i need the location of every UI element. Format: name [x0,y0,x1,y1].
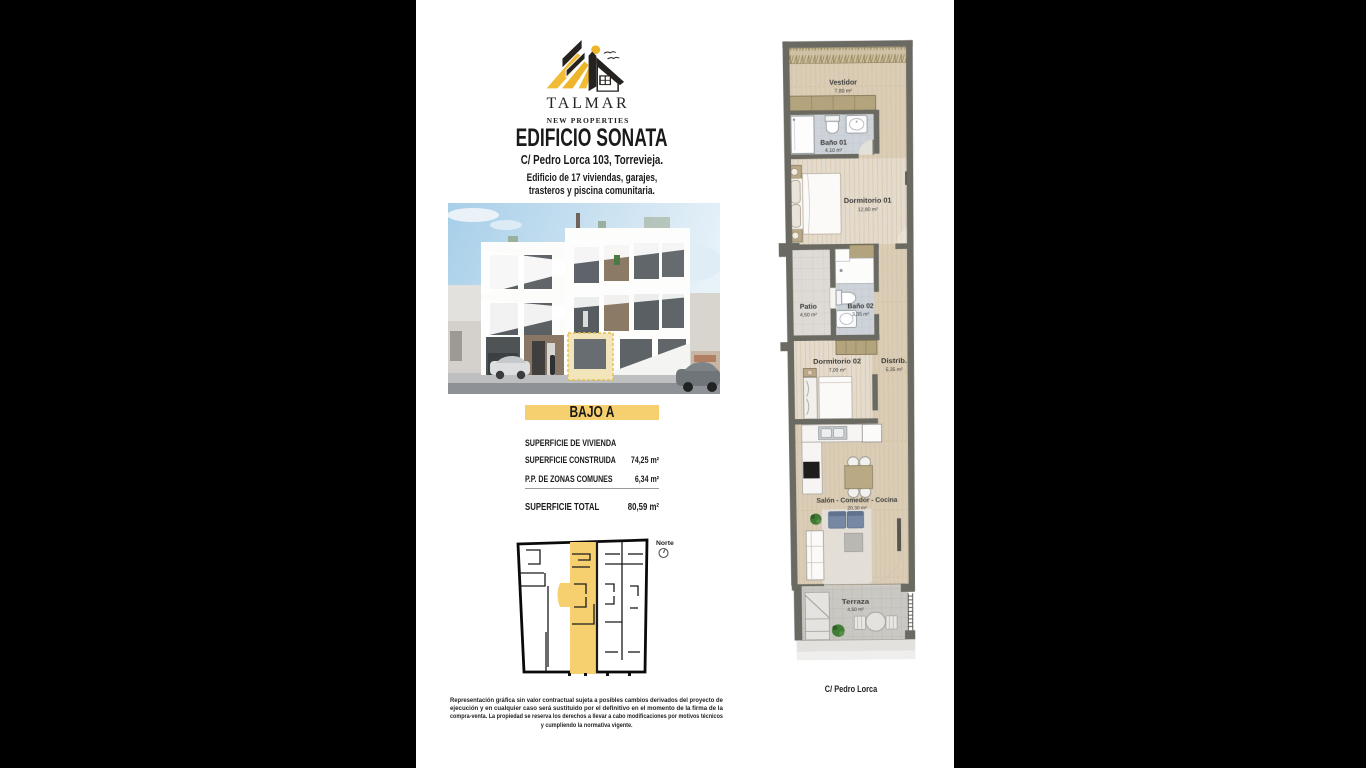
svg-text:Baño 01: Baño 01 [820,140,847,147]
svg-text:7,80 m²: 7,80 m² [835,88,853,94]
svg-text:7,00 m²: 7,00 m² [829,368,846,374]
svg-text:4,50 m²: 4,50 m² [800,312,817,318]
svg-text:Dormitorio 02: Dormitorio 02 [813,357,861,365]
svg-text:Terraza: Terraza [842,598,869,606]
svg-text:Distrib.: Distrib. [881,357,907,365]
svg-text:4,10 m²: 4,10 m² [825,148,843,154]
svg-text:5,35 m²: 5,35 m² [886,367,903,373]
svg-text:Baño 02: Baño 02 [847,303,873,310]
svg-text:Vestidor: Vestidor [829,78,857,87]
svg-text:Dormitorio 01: Dormitorio 01 [844,196,892,205]
svg-text:Salón - Comedor - Cocina: Salón - Comedor - Cocina [816,496,897,505]
svg-text:12,80 m²: 12,80 m² [858,207,878,213]
svg-text:Patio: Patio [800,303,818,311]
svg-text:4,50 m²: 4,50 m² [847,607,864,613]
svg-text:Norte: Norte [656,540,674,547]
svg-text:3,35 m²: 3,35 m² [852,312,869,318]
svg-text:20,30 m²: 20,30 m² [847,506,867,512]
